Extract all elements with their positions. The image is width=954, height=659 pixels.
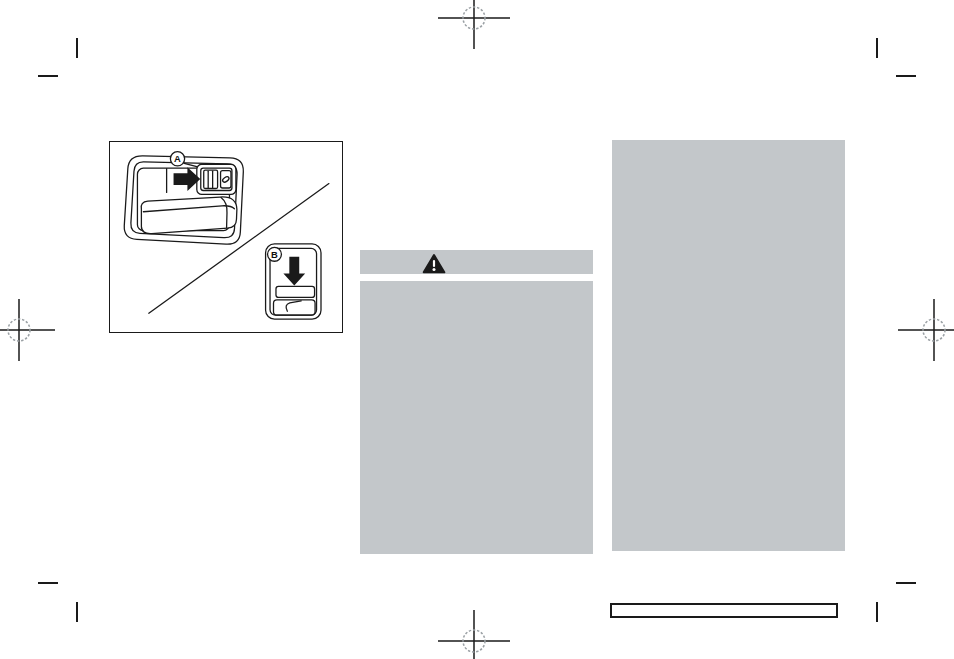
warning-header-bar — [360, 250, 593, 274]
door-panel-illustration: A B — [110, 142, 342, 332]
crop-mark-top-right-horizontal — [896, 75, 916, 77]
crop-mark-top-left-vertical — [76, 38, 78, 58]
power-window-switch-icon — [197, 164, 236, 194]
callout-a-leader — [184, 163, 197, 166]
footer-box — [610, 603, 838, 618]
registration-mark-right — [898, 298, 954, 362]
warning-text-block-redacted — [360, 281, 593, 554]
registration-mark-top — [438, 0, 510, 50]
callout-a-label: A — [174, 153, 181, 164]
crop-mark-top-right-vertical — [876, 38, 878, 58]
registration-mark-bottom — [438, 609, 510, 659]
figure-box-door-switches: A B — [109, 141, 343, 333]
warning-triangle-icon — [422, 253, 446, 274]
body-text-block-redacted — [612, 140, 845, 551]
manual-page: A B — [0, 0, 954, 659]
crop-mark-top-left-horizontal — [38, 75, 58, 77]
crop-mark-bottom-left-horizontal — [38, 582, 58, 584]
crop-mark-bottom-left-vertical — [76, 602, 78, 622]
armrest — [141, 197, 237, 234]
callout-b-label: B — [271, 249, 278, 260]
switch-b-closeup: B — [266, 244, 321, 319]
registration-mark-left — [0, 298, 55, 362]
crop-mark-bottom-right-vertical — [876, 602, 878, 622]
crop-mark-bottom-right-horizontal — [896, 582, 916, 584]
